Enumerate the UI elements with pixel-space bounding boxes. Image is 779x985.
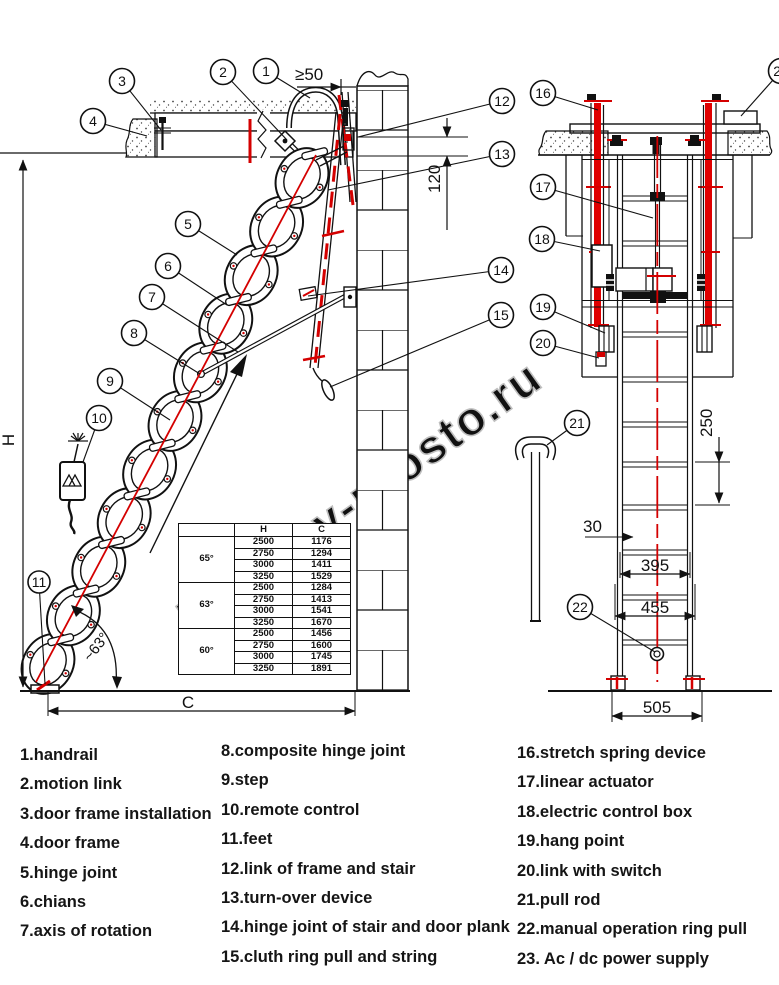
value-cell: 3000 [235, 652, 293, 664]
value-cell: 1413 [293, 594, 351, 606]
svg-text:20: 20 [535, 335, 551, 351]
manual-ring-pull [651, 648, 664, 661]
frame-bolts [607, 135, 705, 154]
svg-text:30: 30 [583, 517, 602, 536]
callout-17: 17 [531, 175, 556, 200]
dim-395: 395 [620, 552, 690, 578]
callout-18: 18 [530, 227, 555, 252]
value-cell: 2500 [235, 537, 293, 549]
spec-table-header: HC [179, 524, 351, 537]
svg-text:250: 250 [697, 409, 716, 437]
legend-item: 1.handrail [20, 741, 212, 770]
remote-cord [69, 500, 75, 534]
watermark-text-2: lestnicy-prosto.ru [0, 509, 6, 804]
dim-505: 505 [612, 692, 702, 722]
svg-text:10: 10 [91, 410, 107, 426]
value-cell: 3250 [235, 617, 293, 629]
svg-text:11: 11 [32, 574, 47, 590]
front-feet [606, 676, 705, 690]
svg-text:23: 23 [773, 63, 779, 79]
svg-text:H: H [0, 434, 18, 446]
value-cell: 1670 [293, 617, 351, 629]
table-header-cell: C [293, 524, 351, 537]
value-cell: 1284 [293, 583, 351, 595]
callout-13: 13 [490, 142, 515, 167]
legend-item: 5.hinge joint [20, 859, 212, 888]
value-cell: 2750 [235, 640, 293, 652]
svg-text:22: 22 [572, 599, 588, 615]
svg-text:12: 12 [494, 93, 510, 109]
legend-item: 18.electric control box [517, 798, 747, 827]
table-header-cell: H [235, 524, 293, 537]
dim-30: 30 [583, 517, 633, 537]
value-cell: 1745 [293, 652, 351, 664]
legend-item: 14.hinge joint of stair and door plank [221, 913, 510, 942]
svg-text:17: 17 [535, 179, 551, 195]
callout-4: 4 [81, 109, 106, 134]
legend-item: 9.step [221, 766, 510, 795]
callout-12: 12 [490, 89, 515, 114]
value-cell: 2500 [235, 583, 293, 595]
legend-item: 15.cluth ring pull and string [221, 943, 510, 972]
callout-15: 15 [489, 303, 514, 328]
value-cell: 3000 [235, 560, 293, 572]
value-cell: 1411 [293, 560, 351, 572]
dim-H: H [0, 160, 23, 687]
svg-text:3: 3 [118, 73, 126, 89]
svg-text:16: 16 [535, 85, 551, 101]
value-cell: 1176 [293, 537, 351, 549]
legend-item: 12.link of frame and stair [221, 855, 510, 884]
legend-column-2: 8.composite hinge joint9.step10.remote c… [221, 737, 510, 972]
legend-item: 16.stretch spring device [517, 739, 747, 768]
legend-item: 8.composite hinge joint [221, 737, 510, 766]
value-cell: 2750 [235, 548, 293, 560]
svg-text:≥50: ≥50 [295, 65, 323, 84]
pull-rod [516, 437, 556, 621]
callout-3: 3 [110, 69, 135, 94]
legend-item: 2.motion link [20, 770, 212, 799]
legend-column-3: 16.stretch spring device17.linear actuat… [517, 739, 747, 974]
angle-cell: 60° [179, 629, 235, 675]
legend-item: 7.axis of rotation [20, 917, 212, 946]
legend-item: 20.link with switch [517, 857, 747, 886]
legend-item: 10.remote control [221, 796, 510, 825]
callout-23: 23 [769, 59, 779, 84]
dim-455: 455 [615, 584, 695, 620]
svg-text:455: 455 [641, 598, 669, 617]
legend-column-1: 1.handrail2.motion link3.door frame inst… [20, 741, 212, 947]
value-cell: 1294 [293, 548, 351, 560]
legend-item: 4.door frame [20, 829, 212, 858]
svg-text:18: 18 [534, 231, 550, 247]
svg-text:5: 5 [184, 216, 192, 232]
callout-11: 11 [28, 571, 50, 593]
svg-text:505: 505 [643, 698, 671, 717]
callout-1: 1 [254, 59, 279, 84]
red-center-mark [249, 119, 252, 163]
svg-text:1: 1 [262, 63, 270, 79]
callout-9: 9 [98, 369, 123, 394]
switch-link [596, 352, 606, 366]
legend-item: 23. Ac / dc power supply [517, 945, 747, 974]
cluth-ring [319, 378, 336, 402]
linear-actuator [616, 140, 676, 303]
legend-item: 22.manual operation ring pull [517, 915, 747, 944]
spec-table-body: 65°2500117627501294300014113250152963°25… [179, 537, 351, 675]
value-cell: 1529 [293, 571, 351, 583]
table-row: 60°25001456 [179, 629, 351, 641]
dim-250: 250 [695, 409, 730, 505]
svg-text:6: 6 [164, 258, 172, 274]
value-cell: 3250 [235, 571, 293, 583]
svg-text:14: 14 [493, 262, 509, 278]
svg-text:C: C [182, 693, 194, 712]
callout-2: 2 [211, 60, 236, 85]
antenna-rays-icon [68, 433, 88, 441]
angle-cell: 65° [179, 537, 235, 583]
angle-cell: 63° [179, 583, 235, 629]
table-row: 65°25001176 [179, 537, 351, 549]
callout-19: 19 [531, 295, 556, 320]
legend-item: 3.door frame installation [20, 800, 212, 829]
remote-antenna [74, 444, 78, 462]
table-header-cell [179, 524, 235, 537]
svg-text:13: 13 [494, 146, 510, 162]
wall [357, 72, 408, 691]
callout-6: 6 [156, 254, 181, 279]
ceiling-right [728, 131, 772, 155]
frame-bolt [159, 117, 166, 123]
callout-20: 20 [531, 331, 556, 356]
svg-text:7: 7 [148, 289, 156, 305]
legend-item: 21.pull rod [517, 886, 747, 915]
remote-control [60, 433, 88, 534]
callout-8: 8 [122, 321, 147, 346]
value-cell: 3250 [235, 663, 293, 675]
dim-C: C [48, 692, 355, 716]
value-cell: 2500 [235, 629, 293, 641]
pull-string [313, 368, 322, 381]
legend-item: 11.feet [221, 825, 510, 854]
legend-item: 17.linear actuator [517, 768, 747, 797]
legend-item: 13.turn-over device [221, 884, 510, 913]
callout-21: 21 [565, 411, 590, 436]
callout-14: 14 [489, 258, 514, 283]
value-cell: 1541 [293, 606, 351, 618]
callout-10: 10 [87, 406, 112, 431]
callout-22: 22 [568, 595, 593, 620]
power-supply-box [724, 111, 757, 124]
spec-table: HC 65°2500117627501294300014113250152963… [178, 523, 351, 675]
svg-text:15: 15 [493, 307, 509, 323]
legend-item: 6.chians [20, 888, 212, 917]
svg-text:2: 2 [219, 64, 227, 80]
table-row: 63°25001284 [179, 583, 351, 595]
svg-text:9: 9 [106, 373, 114, 389]
diagram-page: lestnicy-prosto.ru lestnicy-prosto.ru [0, 0, 779, 985]
legend-item: 19.hang point [517, 827, 747, 856]
callout-5: 5 [176, 212, 201, 237]
value-cell: 2750 [235, 594, 293, 606]
value-cell: 1600 [293, 640, 351, 652]
svg-text:21: 21 [569, 415, 585, 431]
svg-text:8: 8 [130, 325, 138, 341]
svg-text:19: 19 [535, 299, 551, 315]
value-cell: 1891 [293, 663, 351, 675]
value-cell: 1456 [293, 629, 351, 641]
callout-16: 16 [531, 81, 556, 106]
callout-7: 7 [140, 285, 165, 310]
svg-text:4: 4 [89, 113, 97, 129]
value-cell: 3000 [235, 606, 293, 618]
svg-text:395: 395 [641, 556, 669, 575]
